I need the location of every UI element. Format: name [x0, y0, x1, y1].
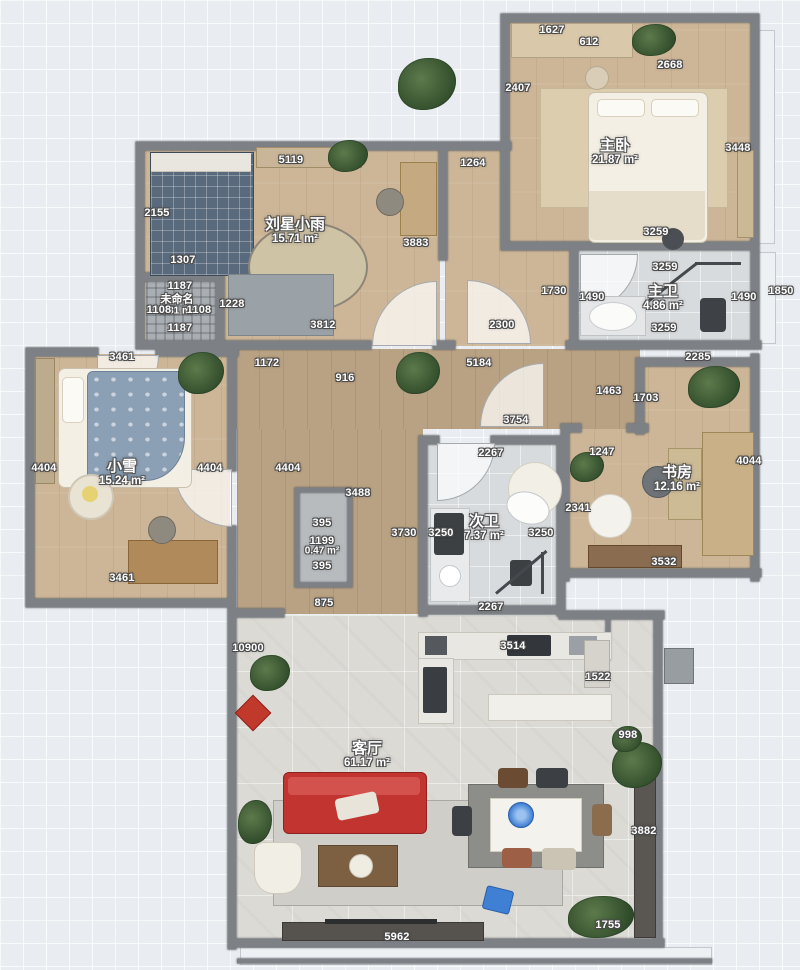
study-vase[interactable]	[588, 494, 632, 538]
robot-vacuum[interactable]	[508, 802, 534, 828]
xiaoxue-desk[interactable]	[128, 540, 218, 584]
dim-label: 916	[336, 372, 355, 384]
floor-plan-canvas: 主卧21.87 m² 刘星小雨15.71 m² 主卫4.86 m² 未命名1.3…	[0, 0, 800, 970]
kitchen-island[interactable]	[488, 694, 612, 721]
dim-label: 1703	[633, 392, 658, 404]
dim-label: 2341	[565, 502, 590, 514]
room-label-second-bath: 次卫7.37 m²	[464, 513, 504, 543]
master-stool[interactable]	[585, 66, 609, 90]
dining-chair-6[interactable]	[592, 804, 612, 836]
dim-label: 1307	[170, 254, 195, 266]
dim-label: 1187	[168, 322, 193, 334]
dim-label: 2267	[478, 447, 503, 459]
dim-label: 3448	[725, 142, 750, 154]
dim-label: 3812	[310, 319, 335, 331]
dim-label: 1730	[541, 285, 566, 297]
outside-column	[664, 648, 694, 684]
master-bed[interactable]	[588, 92, 708, 243]
dim-label: 1199	[310, 535, 335, 547]
dim-label: 998	[619, 729, 638, 741]
dim-label: 3882	[631, 825, 656, 837]
dim-label: 10900	[232, 642, 264, 654]
dim-label: 3883	[403, 237, 428, 249]
dining-chair-4[interactable]	[542, 848, 576, 870]
dim-label: 3250	[428, 527, 453, 539]
dim-label: 2407	[505, 82, 530, 94]
dim-label: 1522	[585, 671, 610, 683]
dim-label: 1850	[768, 285, 793, 297]
dim-label: 1627	[539, 24, 564, 36]
master-bath-shower-glass-2	[695, 262, 741, 265]
kids-desk[interactable]	[400, 162, 437, 236]
dim-label: 1228	[219, 298, 244, 310]
dim-label: 3514	[500, 640, 525, 652]
dining-chair-2[interactable]	[536, 768, 568, 788]
dim-label: 1463	[596, 385, 621, 397]
master-bath-toilet[interactable]	[700, 298, 726, 332]
dim-label: 4044	[736, 455, 761, 467]
dim-label: 395	[313, 517, 332, 529]
dim-label: 1247	[589, 446, 614, 458]
dim-label: 875	[315, 597, 334, 609]
dim-label: 1108	[147, 304, 172, 316]
dim-label: 3461	[109, 572, 134, 584]
second-bath-shower-glass-2	[541, 552, 544, 594]
dining-chair-1[interactable]	[498, 768, 528, 788]
master-dresser[interactable]	[737, 150, 754, 238]
dim-label: 3259	[651, 322, 676, 334]
dining-table[interactable]	[490, 798, 582, 852]
dim-label: 2300	[489, 319, 514, 331]
dim-label: 3488	[345, 487, 370, 499]
room-label-master-bath: 主卫4.86 m²	[643, 283, 683, 313]
dim-label: 3532	[651, 556, 676, 568]
armchair[interactable]	[254, 842, 302, 894]
dim-label: 4404	[197, 462, 222, 474]
room-label-xiaoxue: 小雪15.24 m²	[99, 458, 145, 488]
room-label-shaft: 0.47 m²	[305, 546, 339, 557]
dim-label: 1187	[168, 280, 193, 292]
dim-label: 3461	[109, 351, 134, 363]
room-label-master-bedroom: 主卧21.87 m²	[592, 137, 638, 167]
tv-console[interactable]	[282, 922, 484, 941]
study-bookshelf[interactable]	[702, 432, 754, 556]
dim-label: 5184	[466, 357, 491, 369]
dim-label: 4404	[31, 462, 56, 474]
dim-label: 3754	[503, 414, 528, 426]
dining-chair-5[interactable]	[452, 806, 472, 836]
dim-label: 1172	[255, 357, 280, 369]
dim-label: 1755	[595, 919, 620, 931]
xiaoxue-chair[interactable]	[148, 516, 176, 544]
dim-label: 1264	[460, 157, 485, 169]
red-sofa[interactable]	[283, 772, 427, 834]
dim-label: 2155	[144, 207, 169, 219]
dim-label: 2668	[657, 59, 682, 71]
dim-label: 3259	[643, 226, 668, 238]
kitchen-column[interactable]	[418, 658, 454, 724]
dim-label: 1490	[731, 291, 756, 303]
dim-label: 612	[580, 36, 599, 48]
dim-label: 1108	[187, 304, 212, 316]
dim-label: 3730	[391, 527, 416, 539]
dim-label: 395	[313, 560, 332, 572]
kids-chair[interactable]	[376, 188, 404, 216]
room-label-study: 书房12.16 m²	[654, 464, 700, 494]
dim-label: 3250	[528, 527, 553, 539]
dim-label: 3259	[652, 261, 677, 273]
master-wardrobe[interactable]	[511, 23, 633, 58]
room-label-living-room: 客厅61.17 m²	[344, 740, 390, 770]
dim-label: 2285	[685, 351, 710, 363]
dim-label: 1490	[579, 291, 604, 303]
dim-label: 2267	[478, 601, 503, 613]
dining-chair-3[interactable]	[502, 848, 532, 868]
room-label-kids-bedroom: 刘星小雨15.71 m²	[265, 216, 325, 246]
coffee-table[interactable]	[318, 845, 398, 887]
dim-label: 5119	[279, 154, 304, 166]
dim-label: 4404	[275, 462, 300, 474]
dim-label: 5962	[384, 931, 409, 943]
